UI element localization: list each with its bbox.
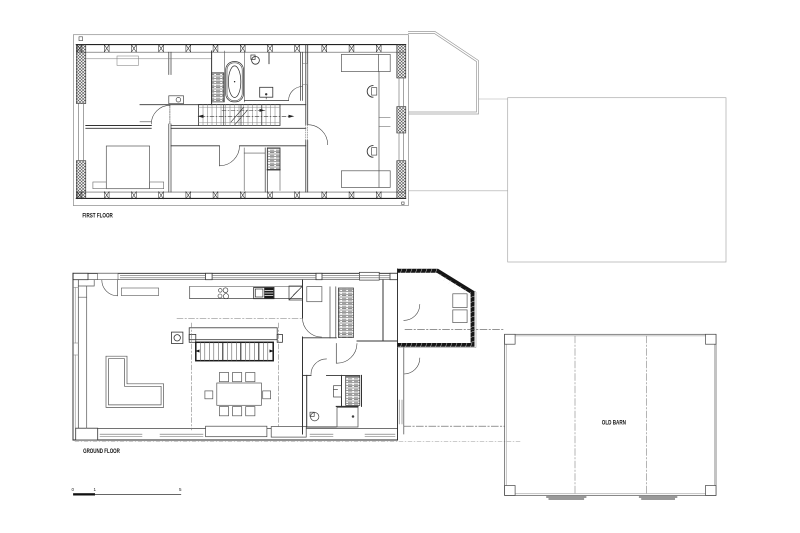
svg-text:FIRST FLOOR: FIRST FLOOR [82, 212, 113, 219]
svg-text:OLD BARN: OLD BARN [602, 420, 626, 426]
svg-text:GROUND FLOOR: GROUND FLOOR [83, 448, 120, 455]
